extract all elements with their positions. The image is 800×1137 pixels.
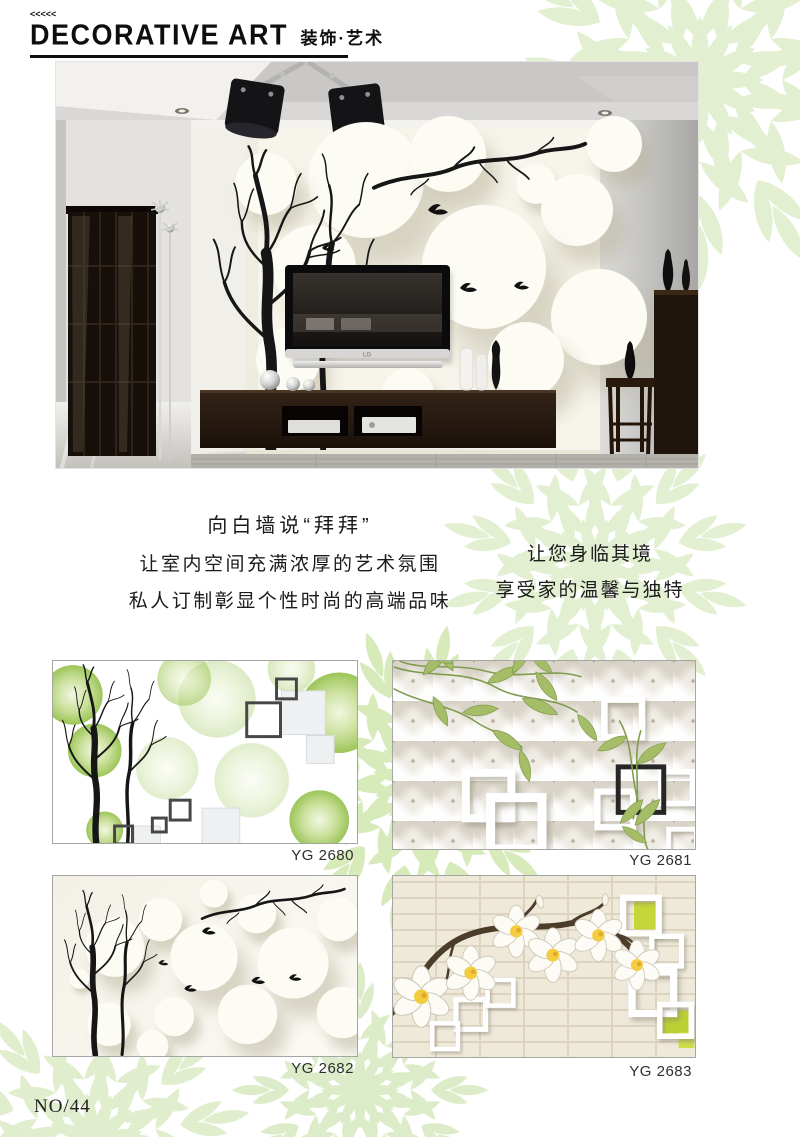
page-title: DECORATIVE ART 装饰·艺术 — [30, 20, 384, 51]
tv-shelf — [293, 361, 443, 368]
product-code: YG 2681 — [392, 852, 692, 869]
product-code: YG 2680 — [52, 847, 354, 864]
tv: LG — [285, 265, 452, 368]
thumbnail-art-flower-branch — [393, 876, 695, 1057]
tagline-line: 让室内空间充满浓厚的艺术氛围 — [118, 549, 462, 576]
page-title-en: DECORATIVE ART — [30, 19, 288, 52]
flower-icon — [393, 905, 662, 1027]
thumbnail-art-vine-squares — [393, 661, 695, 849]
hero-scene: LG — [56, 62, 698, 468]
tagline-line: 享受家的温馨与独特 — [486, 575, 694, 602]
thumbnail-art-trees-squares — [53, 661, 357, 843]
tagline-line: 向白墙说“拜拜” — [118, 509, 462, 538]
hero-room-photo: LG — [56, 62, 698, 468]
page-number: NO/44 — [34, 1096, 91, 1118]
product-thumbnail-yg2681 — [392, 660, 696, 850]
tagline-left: 向白墙说“拜拜” 让室内空间充满浓厚的艺术氛围 私人订制彰显个性时尚的高端品味 — [118, 509, 462, 623]
product-thumbnail-yg2682 — [52, 875, 358, 1057]
hallway — [56, 120, 191, 468]
product-thumbnail-yg2680 — [52, 660, 358, 844]
tagline-line: 让您身临其境 — [486, 539, 694, 566]
product-code: YG 2683 — [392, 1063, 692, 1080]
header-arrows: <<<<< — [30, 9, 56, 19]
product-code: YG 2682 — [52, 1060, 354, 1077]
page-title-cn: 装饰·艺术 — [300, 29, 384, 48]
catalog-page: <<<<< DECORATIVE ART 装饰·艺术 — [0, 0, 800, 1137]
tv-screen — [293, 273, 442, 346]
hallway-door — [66, 206, 158, 456]
product-thumbnail-yg2683 — [392, 875, 696, 1058]
tagline-right: 让您身临其境 享受家的温馨与独特 — [486, 539, 694, 611]
tagline-line: 私人订制彰显个性时尚的高端品味 — [118, 586, 462, 613]
tv-logo: LG — [363, 353, 371, 359]
white-3d-circles — [70, 880, 357, 1056]
thumbnail-art-tree-circles — [53, 876, 357, 1056]
title-underline — [30, 55, 348, 58]
